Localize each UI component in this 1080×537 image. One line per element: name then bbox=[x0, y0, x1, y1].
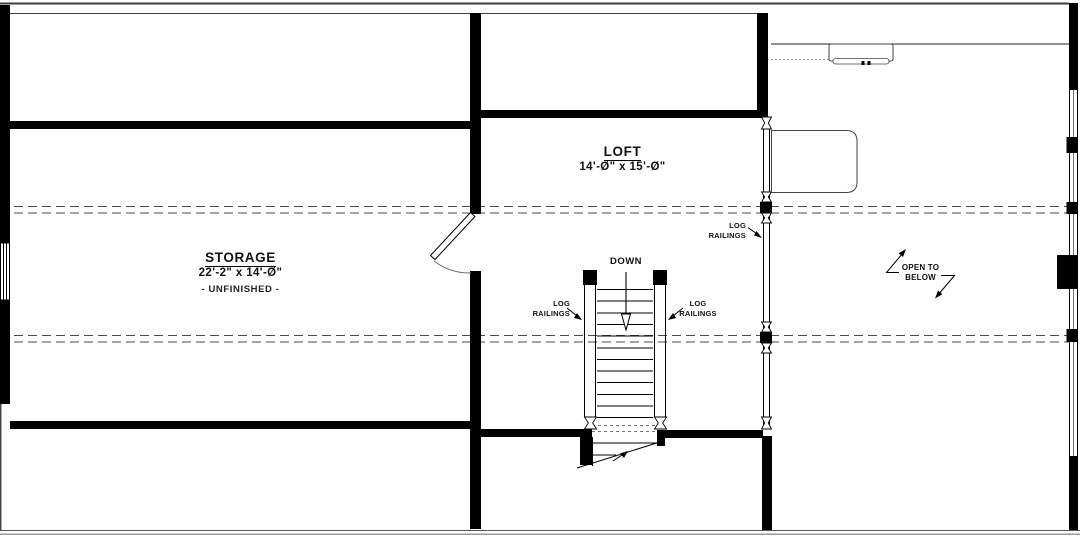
storage-title-text: STORAGE bbox=[205, 250, 276, 267]
storage-title: STORAGE bbox=[178, 250, 303, 266]
log-railings-label-right: LOG RAILINGS bbox=[679, 299, 717, 318]
storage-note: - UNFINISHED - bbox=[178, 285, 303, 296]
furniture-bed bbox=[772, 131, 858, 193]
loft-edge-railing bbox=[760, 117, 772, 429]
log-railings-label-left: LOG RAILINGS bbox=[528, 299, 570, 318]
right-log-wall bbox=[1057, 90, 1078, 456]
storage-dimensions: 22'-2" x 14'-Ø" bbox=[178, 267, 303, 280]
hidden-treads bbox=[592, 426, 657, 432]
left-wall-window bbox=[1, 243, 10, 300]
loft-dimensions: 14'-Ø" x 15'-Ø" bbox=[560, 161, 685, 174]
stairs-down-label: DOWN bbox=[596, 257, 656, 268]
stair-newel-post bbox=[653, 270, 667, 285]
floor-plan-canvas: LOFT 14'-Ø" x 15'-Ø" STORAGE 22'-2" x 14… bbox=[0, 0, 1080, 537]
loft-title: LOFT bbox=[560, 144, 685, 160]
upper-right-features bbox=[771, 44, 1069, 65]
storage-door bbox=[431, 213, 476, 274]
log-railings-label-upper: LOG RAILINGS bbox=[704, 221, 746, 240]
loft-title-text: LOFT bbox=[604, 144, 642, 161]
stair-newel-post bbox=[583, 270, 597, 285]
open-to-below-label: OPEN TO BELOW bbox=[893, 263, 948, 282]
